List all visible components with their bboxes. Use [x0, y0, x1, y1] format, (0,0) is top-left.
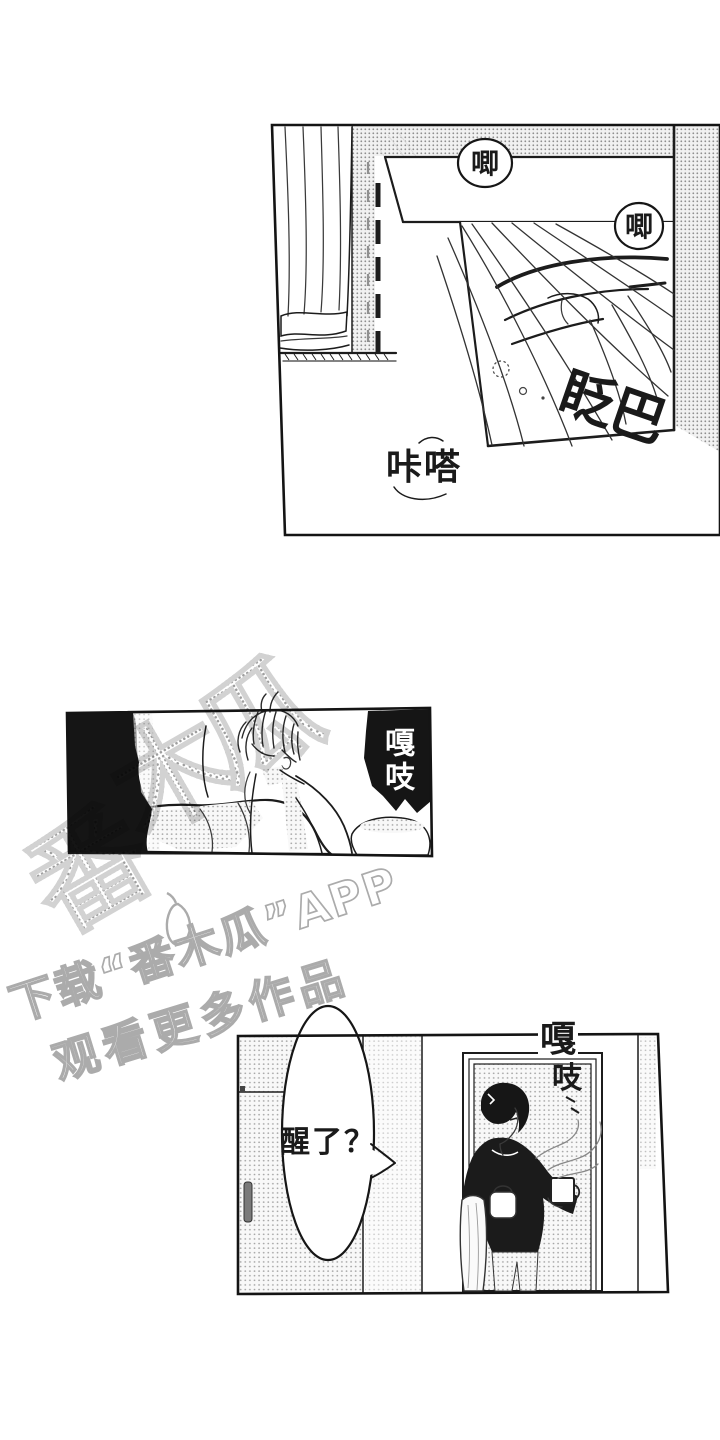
kettle: [490, 1192, 516, 1218]
right-wall-strip: [640, 1037, 656, 1169]
panel3-sfx-creak-bottom: 吱: [552, 1064, 582, 1094]
bubble-2-text: 唧: [625, 213, 653, 241]
mug: [551, 1178, 574, 1203]
closet-handle: [244, 1182, 252, 1222]
wall-halftone-column: [676, 156, 720, 452]
panel-1-window-eye: [272, 125, 720, 535]
manga-artwork: [0, 0, 720, 1440]
manga-page: 唧 唧 眨巴 咔嗒 嘎吱 嘎 吱 醒了？ 番 木 瓜 下载“番木瓜”APP 观看…: [0, 0, 720, 1440]
draped-jacket: [460, 1196, 486, 1292]
bubble-3-text: 醒了？: [280, 1128, 376, 1158]
bubble-1-text: 唧: [471, 150, 499, 178]
panel3-sfx-creak-top: 嘎: [538, 1022, 578, 1058]
wall-halftone-band: [374, 126, 720, 156]
panel-2-bed: [67, 692, 432, 856]
sfx-click-text: 咔嗒: [386, 450, 462, 486]
panel2-sfx-creak-text: 嘎吱: [381, 727, 411, 795]
